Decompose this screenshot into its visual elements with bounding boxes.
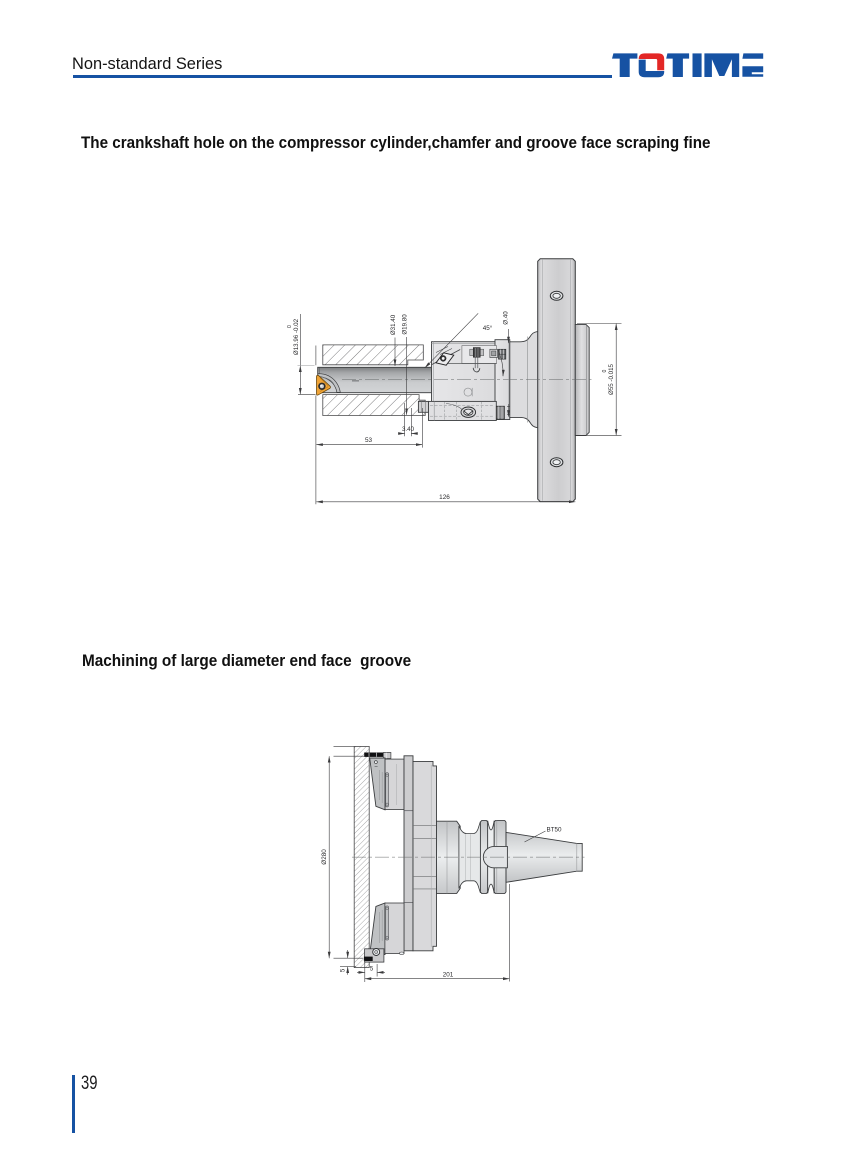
svg-text:0: 0: [602, 369, 608, 372]
svg-text:5: 5: [370, 967, 374, 973]
svg-text:Ø55 -0.015: Ø55 -0.015: [608, 363, 615, 395]
svg-text:Ø13.96 -0.02: Ø13.96 -0.02: [293, 318, 300, 355]
svg-text:Ø.40: Ø.40: [503, 311, 510, 325]
svg-text:3.40: 3.40: [402, 426, 415, 433]
svg-text:Ø31.40: Ø31.40: [390, 314, 397, 335]
svg-text:5: 5: [340, 968, 346, 972]
svg-text:Ø280: Ø280: [321, 849, 328, 865]
svg-text:53: 53: [365, 437, 373, 444]
svg-text:201: 201: [443, 971, 454, 978]
svg-text:126: 126: [439, 494, 450, 501]
svg-text:0: 0: [287, 325, 293, 328]
svg-text:Ø19.80: Ø19.80: [402, 314, 409, 335]
svg-text:BT50: BT50: [547, 827, 563, 834]
svg-text:45°: 45°: [483, 324, 493, 332]
